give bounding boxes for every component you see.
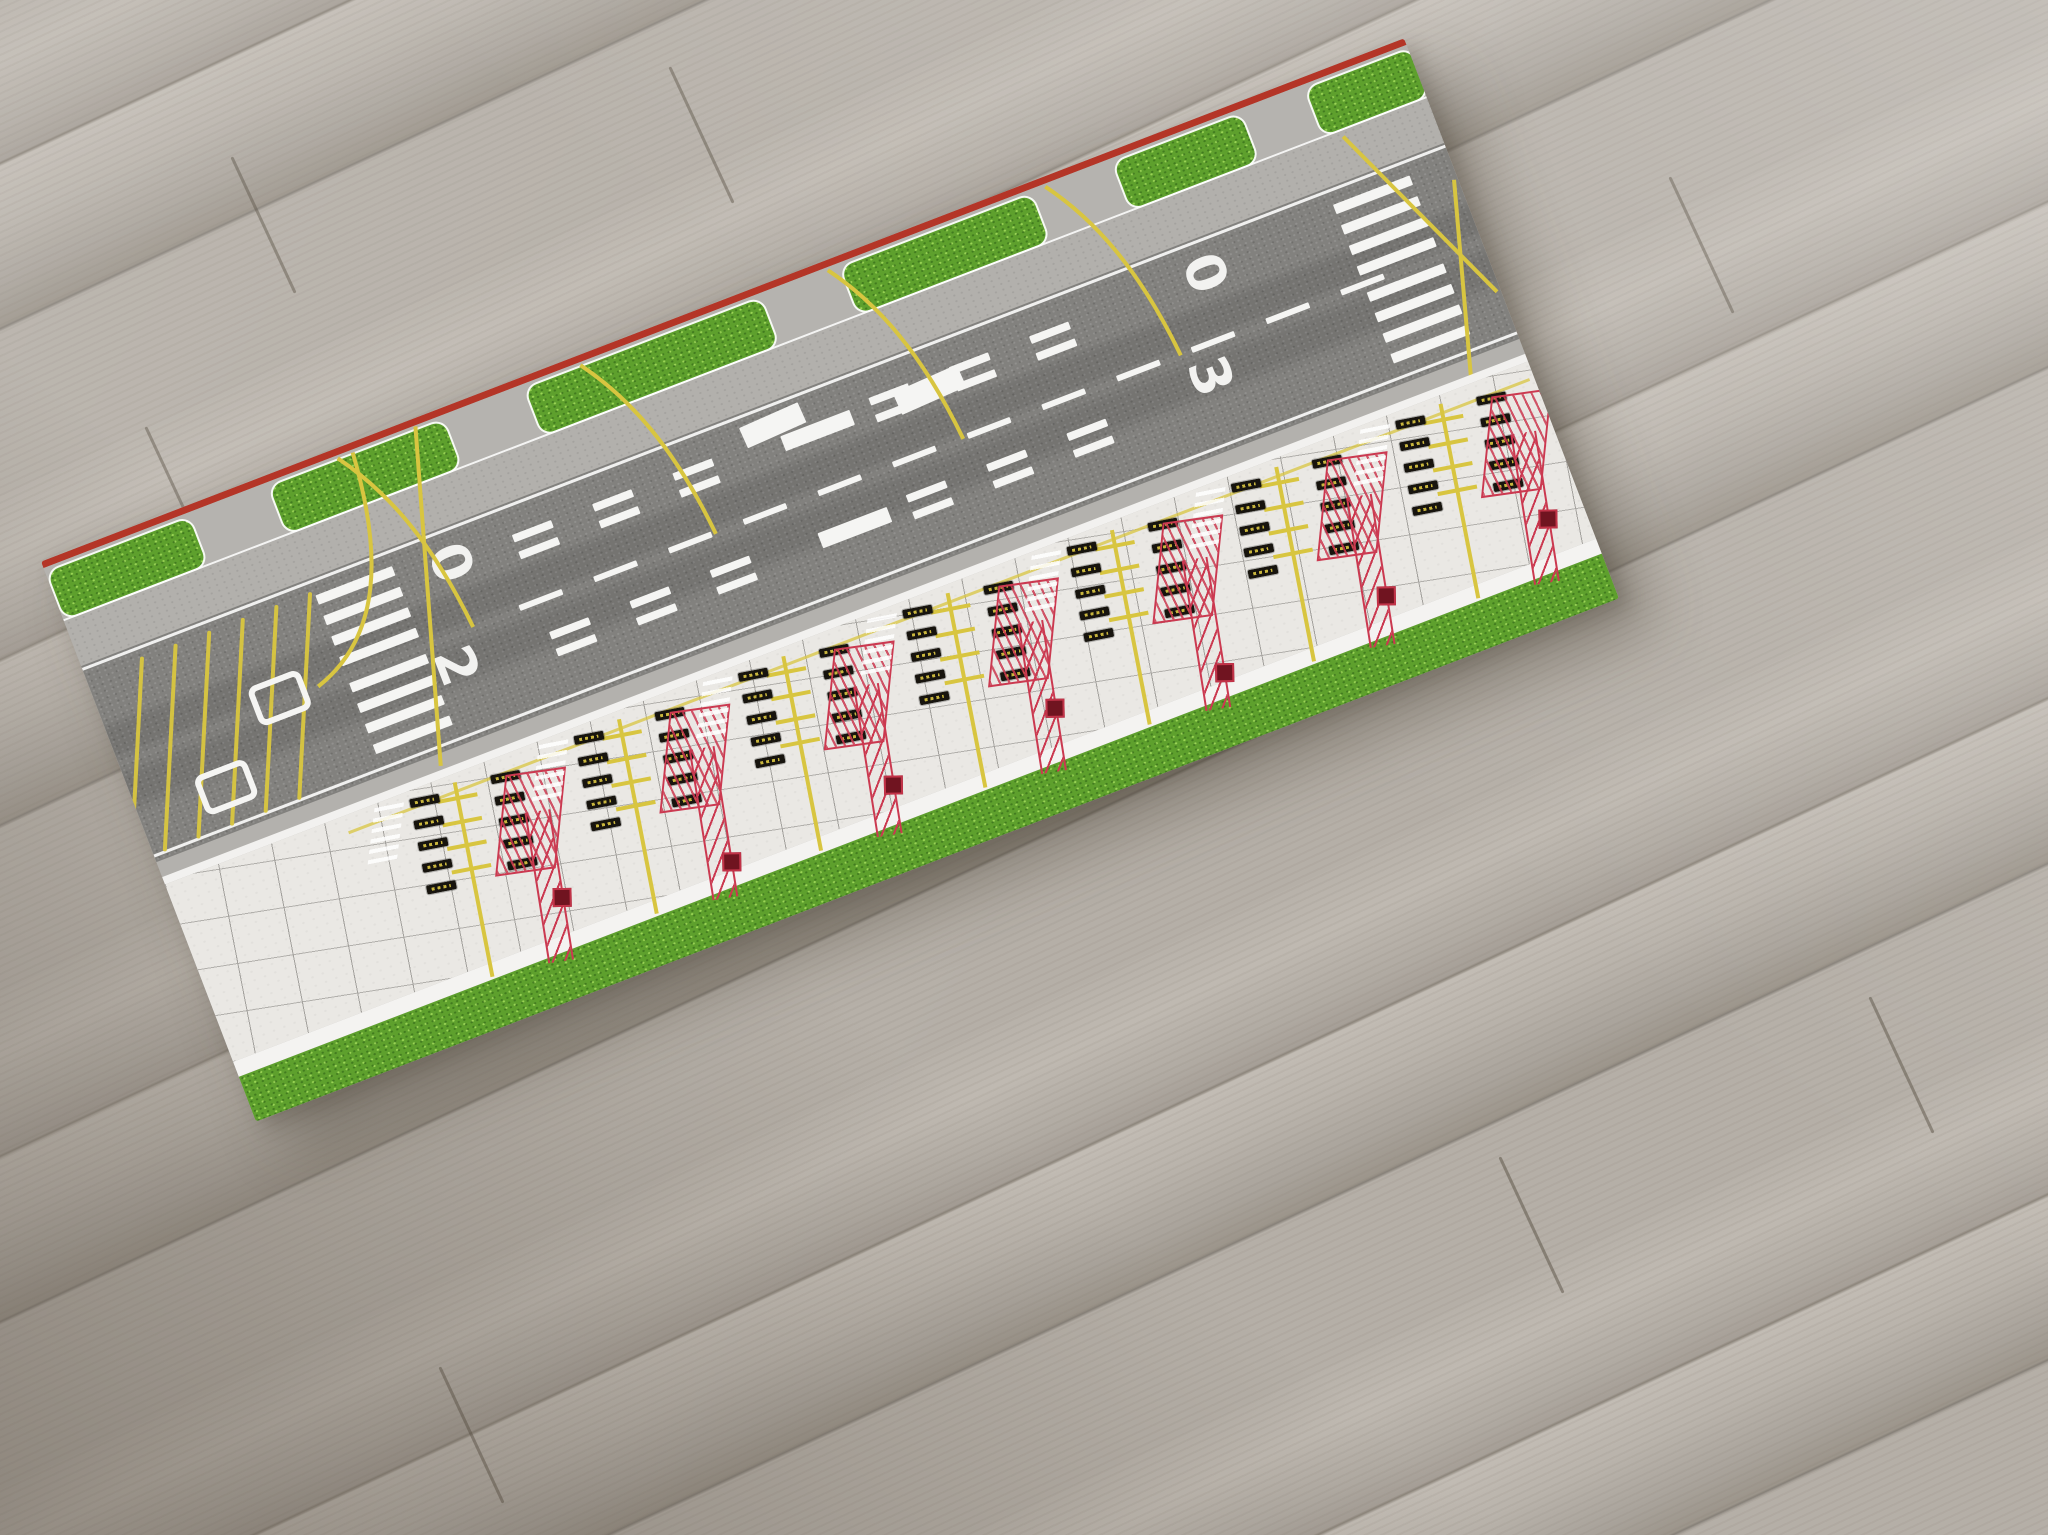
stand-sign [578,752,609,767]
stand-sign [1243,543,1274,558]
stand-sign [754,754,785,769]
touchdown-zone-stripe [636,603,678,626]
gate-leadin-line [617,719,659,914]
stand-sign [1079,606,1110,621]
red-square-marker [1215,663,1234,682]
stand-sign [1071,563,1102,578]
stand-sign [1066,541,1097,556]
red-ladder-strip [1510,431,1559,585]
gate-leadin-line [1439,404,1481,599]
touchdown-zone-stripe [518,537,560,560]
stand-sign [1403,458,1434,473]
red-ladder-strip [1017,620,1066,774]
touchdown-zone-stripe [629,586,671,609]
centerline-dash [1041,388,1086,410]
stand-sign [426,880,457,895]
red-square-marker [1045,699,1064,718]
stand-sign [586,795,617,810]
stand-sign [590,817,621,832]
stand-sign [750,732,781,747]
stand-sign [409,794,440,809]
touchdown-zone-stripe [716,572,758,595]
centerline-dash [892,446,937,468]
touchdown-zone-stripe [1073,435,1115,458]
scene-photo: 0 2 0 3 [0,0,2048,1535]
gate-leadin-line [1274,467,1316,662]
centerline-dash [967,417,1012,439]
touchdown-zone-stripe [672,458,714,481]
touchdown-zone-stripe [710,555,752,578]
touchdown-zone-stripe [986,449,1028,472]
stand-sign [902,604,933,619]
touchdown-zone-stripe [1066,419,1108,442]
touchdown-zone-stripe [598,506,640,529]
centerline-dash [1265,302,1310,324]
centerline-dash [1116,360,1161,382]
red-square-marker [1538,509,1557,528]
stand-sign [573,731,604,746]
stand-sign [1395,415,1426,430]
stand-sign [915,669,946,684]
stand-sign [582,774,613,789]
centerline-dash [518,589,563,611]
touchdown-zone-stripe [906,480,948,503]
stand-sign [1231,478,1262,493]
touchdown-zone-stripe [1029,321,1071,344]
touchdown-zone-stripe [592,489,634,512]
stand-sign [417,837,448,852]
touchdown-zone-stripe [512,520,554,543]
stand-sign [1247,565,1278,580]
stand-sign [1075,585,1106,600]
touchdown-zone-stripe [555,634,597,657]
centerline-dash [742,503,787,525]
stand-sign [413,815,444,830]
aiming-point-bar [817,507,892,548]
stand-sign [1412,502,1443,517]
red-ladder-strip [525,809,574,963]
centerline-dash [668,532,713,554]
touchdown-zone-stripe [679,475,721,498]
stand-sign [738,668,769,683]
red-square-marker [552,888,571,907]
gate-leadin-line [453,782,495,977]
centerline-dash [817,474,862,496]
touchdown-zone-stripe [912,497,954,520]
red-ladder-strip [689,746,738,900]
touchdown-zone-stripe [992,466,1034,489]
red-square-marker [722,852,741,871]
stand-sign [919,691,950,706]
red-ladder-strip [1182,557,1231,711]
stand-sign [1235,500,1266,515]
gate-leadin-line [946,593,988,788]
gate-leadin-line [1110,530,1152,725]
red-ladder-strip [853,683,902,837]
red-ladder-strip [1346,494,1395,648]
red-square-marker [1377,586,1396,605]
gate-leadin-line [781,656,823,851]
stand-sign [910,648,941,663]
runway-white-pad [893,365,967,415]
stand-sign [746,711,777,726]
stand-sign [906,626,937,641]
stand-sign [1239,521,1270,536]
touchdown-zone-stripe [1035,338,1077,361]
stand-sign [1083,628,1114,643]
touchdown-zone-stripe [549,617,591,640]
stand-sign [1408,480,1439,495]
stand-sign [1399,437,1430,452]
stand-sign [742,689,773,704]
red-square-marker [884,775,903,794]
centerline-dash [593,560,638,582]
stand-sign [422,858,453,873]
